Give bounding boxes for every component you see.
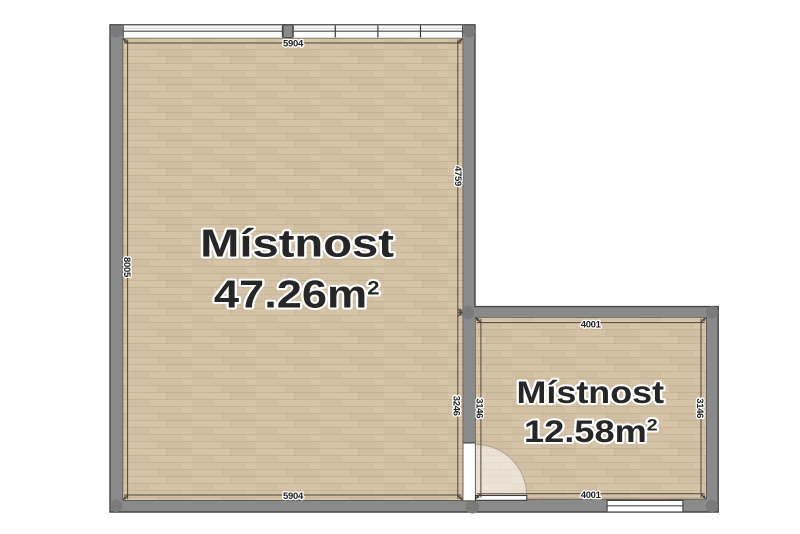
svg-text:4001: 4001	[581, 490, 602, 501]
svg-text:5904: 5904	[283, 38, 304, 49]
svg-text:3146: 3146	[694, 398, 705, 418]
svg-text:12.58m2: 12.58m2	[524, 414, 658, 449]
svg-text:3246: 3246	[451, 396, 462, 416]
svg-text:3146: 3146	[474, 398, 485, 418]
svg-text:5904: 5904	[283, 491, 304, 502]
svg-text:8005: 8005	[121, 257, 132, 278]
svg-text:4001: 4001	[581, 320, 602, 331]
svg-text:Místnost: Místnost	[517, 375, 665, 410]
svg-text:4759: 4759	[452, 166, 463, 186]
svg-text:Místnost: Místnost	[200, 222, 394, 265]
svg-text:47.26m2: 47.26m2	[214, 272, 380, 315]
